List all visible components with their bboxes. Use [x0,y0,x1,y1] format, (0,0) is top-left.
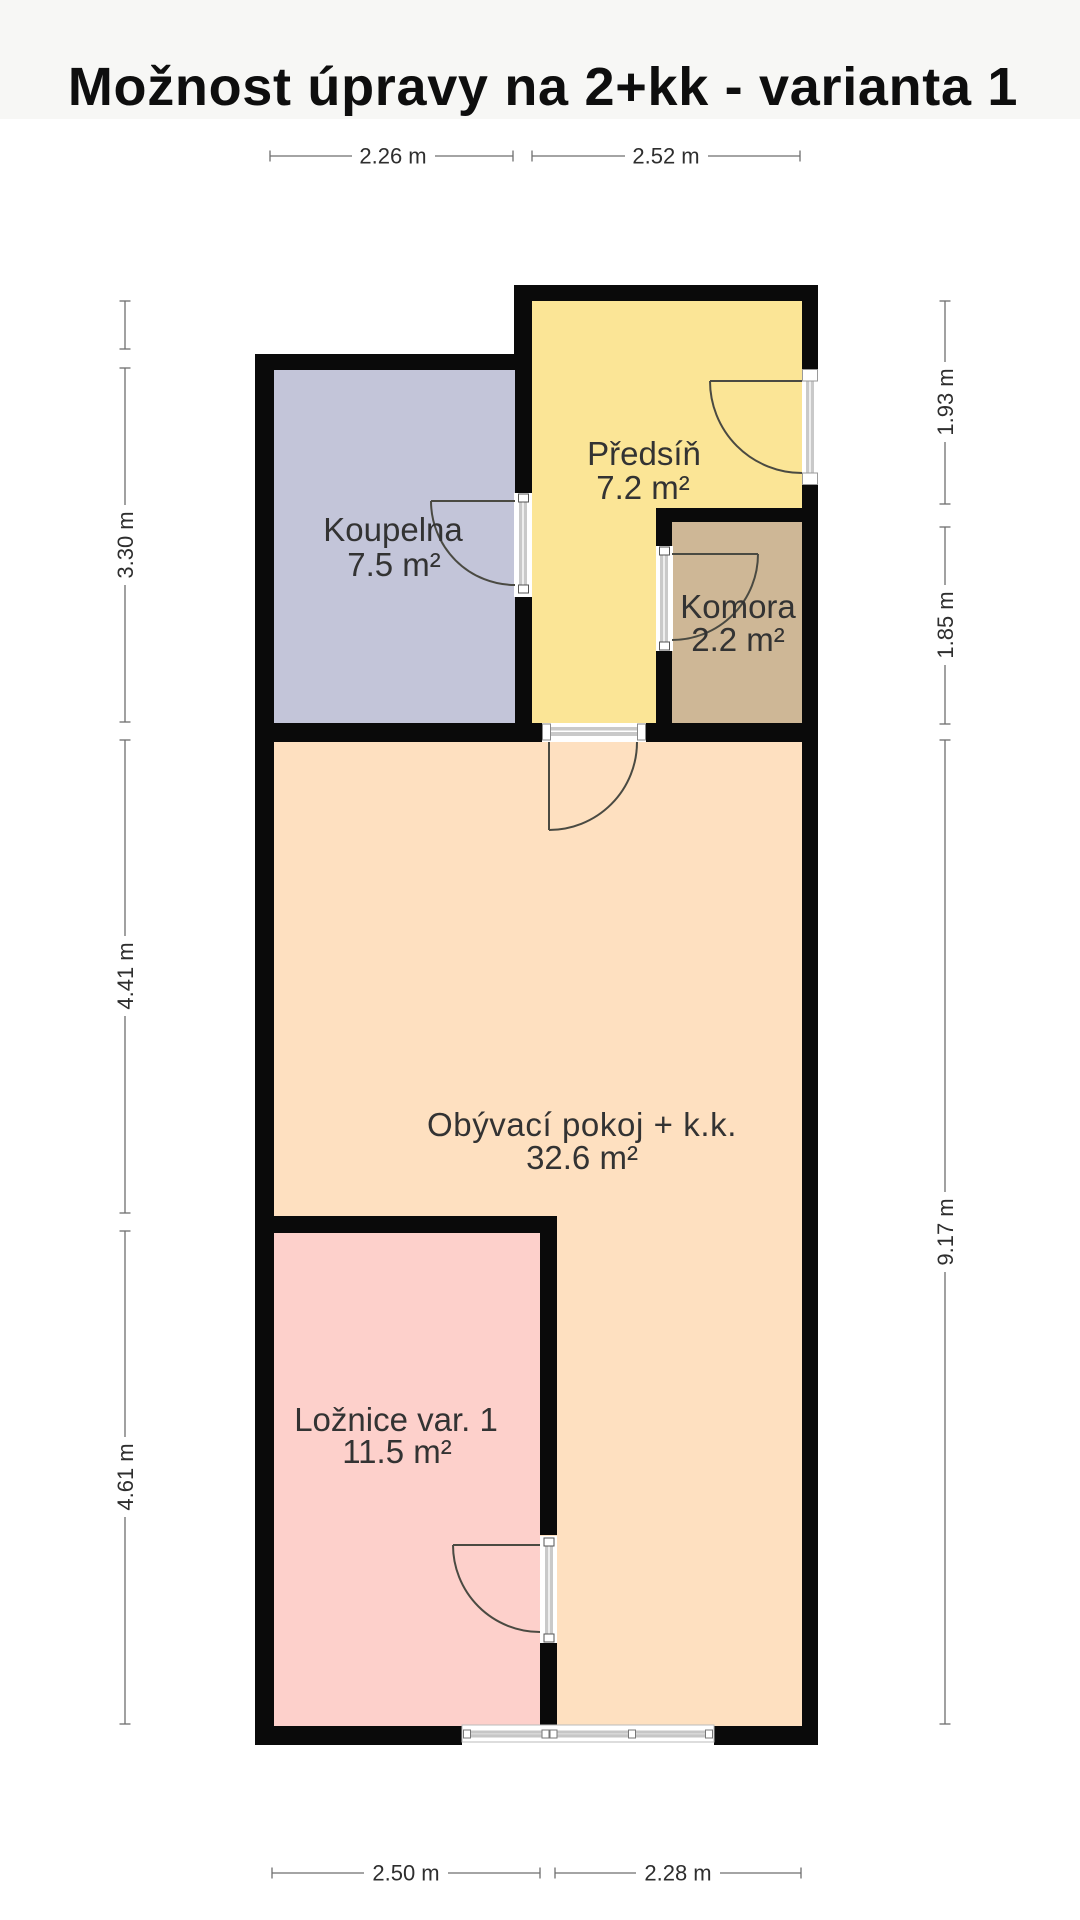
svg-text:2.26 m: 2.26 m [359,144,426,169]
svg-text:4.41 m: 4.41 m [113,942,138,1009]
svg-text:4.61 m: 4.61 m [113,1443,138,1510]
svg-text:Koupelna: Koupelna [323,511,463,548]
svg-text:Předsíň: Předsíň [587,435,701,472]
svg-text:32.6 m²: 32.6 m² [526,1139,638,1176]
svg-text:Komora: Komora [680,588,796,625]
svg-text:Obývací pokoj + k.k.: Obývací pokoj + k.k. [427,1106,737,1143]
svg-text:11.5 m²: 11.5 m² [342,1433,451,1470]
svg-text:2.50 m: 2.50 m [372,1861,439,1886]
svg-text:1.85 m: 1.85 m [933,591,958,658]
svg-text:2.52 m: 2.52 m [632,144,699,169]
svg-text:2.28 m: 2.28 m [644,1861,711,1886]
svg-text:7.2 m²: 7.2 m² [596,469,690,506]
svg-text:2.2 m²: 2.2 m² [691,621,785,658]
svg-text:7.5 m²: 7.5 m² [347,546,441,583]
svg-text:3.30 m: 3.30 m [113,511,138,578]
svg-text:9.17 m: 9.17 m [933,1198,958,1265]
svg-text:Možnost úpravy na 2+kk - varia: Možnost úpravy na 2+kk - varianta 1 [68,57,1018,117]
svg-text:1.93 m: 1.93 m [933,368,958,435]
